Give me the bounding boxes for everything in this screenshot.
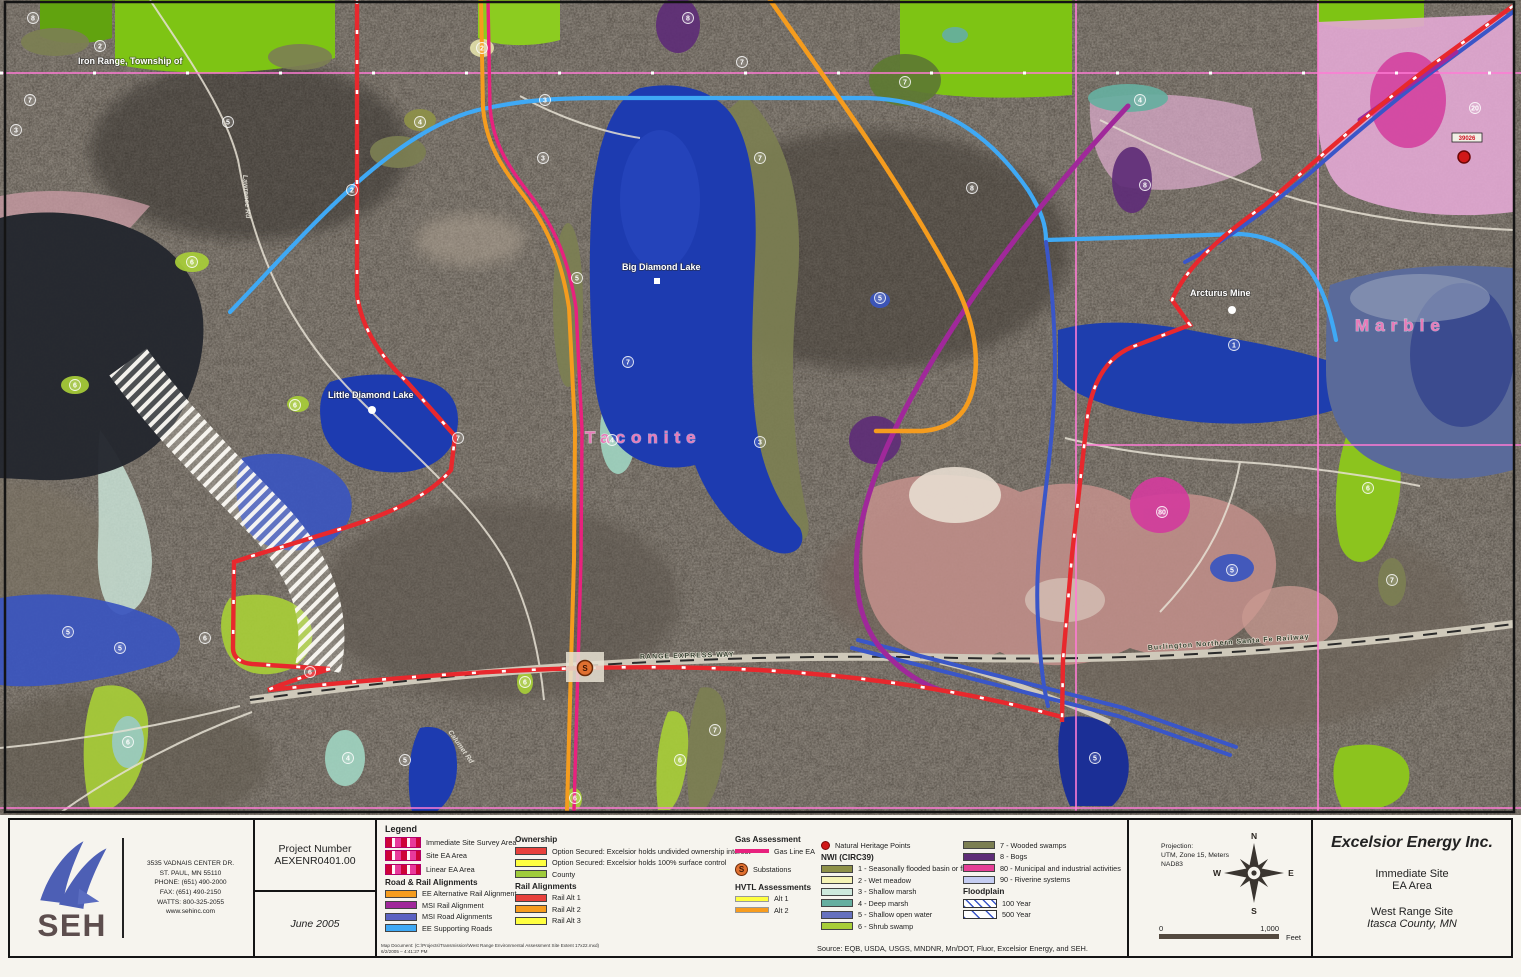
legend-label: 5 - Shallow open water	[858, 910, 932, 919]
wetland-class-number: 7	[456, 436, 460, 443]
map-document-timestamp: 6/2/2005 – 4:41:27 PM	[381, 949, 599, 955]
scale-unit: Feet	[1286, 933, 1301, 942]
scale-zero: 0	[1159, 924, 1163, 933]
address-line: PHONE: (651) 490-2000	[128, 878, 253, 888]
floodplain-header: Floodplain	[963, 887, 1131, 896]
arcturus-mine-label: Arcturus Mine	[1190, 288, 1251, 298]
wetland-class-number: 7	[740, 60, 744, 67]
wetland-class-number: 80	[1158, 510, 1166, 517]
address-line: 3535 VADNAIS CENTER DR.	[128, 859, 253, 869]
legend-label: 500 Year	[1002, 910, 1031, 919]
scale-max: 1,000	[1260, 924, 1279, 933]
linear-ea-area-swatch	[385, 864, 421, 875]
little-diamond-lake-label: Little Diamond Lake	[328, 390, 414, 400]
wetland-class-number: 5	[226, 120, 230, 127]
legend-label: 6 - Shrub swamp	[858, 922, 913, 931]
msi-rail-swatch	[385, 901, 417, 909]
nwi7-swatch	[963, 841, 995, 849]
project-date: June 2005	[290, 918, 339, 930]
project-number-value: AEXENR0401.00	[274, 855, 355, 867]
legend-panel: Legend Immediate Site Survey Area Site E…	[375, 818, 1129, 958]
substation-legend-icon: S	[735, 863, 748, 876]
wetland-class-number: 8	[1143, 183, 1147, 190]
legend-label: Immediate Site Survey Area	[426, 838, 516, 847]
ee-alt-rail-swatch	[385, 890, 417, 898]
address-line: WATTS: 800-325-2055	[128, 898, 253, 908]
legend-label: 1 - Seasonally flooded basin or flat	[858, 864, 970, 873]
scale-bar: 0 1,000 Feet	[1159, 924, 1279, 939]
wetland-class-number: 2	[98, 44, 102, 51]
nwi1-swatch	[821, 865, 853, 873]
rail-alt2-swatch	[515, 905, 547, 913]
wetland-class-number: 5	[66, 630, 70, 637]
ee-supporting-roads-swatch	[385, 924, 417, 932]
map-subtitle-line2: Itasca County, MN	[1367, 918, 1457, 930]
legend-label: 2 - Wet meadow	[858, 876, 911, 885]
wetland-class-number: 4	[346, 756, 350, 763]
legend-label: 8 - Bogs	[1000, 852, 1027, 861]
wetland-class-number: 6	[126, 740, 130, 747]
wetland-class-number: 6	[523, 680, 527, 687]
wetland-class-number: 6	[203, 636, 207, 643]
wetland-class-number: 7	[713, 728, 717, 735]
nwi2-swatch	[821, 876, 853, 884]
wetland-class-number: 20	[1471, 106, 1479, 113]
wetland-class-number: 3	[543, 98, 547, 105]
township-label: Iron Range, Township of	[78, 56, 183, 66]
wetland-class-number: 4	[418, 120, 422, 127]
site-ea-area-swatch	[385, 850, 421, 861]
wetland-class-number: 4	[1138, 98, 1142, 105]
legend-label: Rail Alt 1	[552, 893, 581, 902]
wetland-class-number: 5	[878, 296, 882, 303]
legend-label: Natural Heritage Points	[835, 841, 910, 850]
wetland-class-number: 6	[1366, 486, 1370, 493]
title-block-panel: Excelsior Energy Inc. Immediate Site EA …	[1311, 818, 1513, 958]
divider	[122, 838, 124, 938]
nwi4-swatch	[821, 899, 853, 907]
map-canvas: S 39026 Iron Range, Township of Big Diam…	[0, 0, 1521, 815]
legend-label: 100 Year	[1002, 899, 1031, 908]
heritage-point-id: 39026	[1459, 136, 1476, 142]
legend-label: Gas Line EA	[774, 847, 815, 856]
map-title-line1: Immediate Site	[1375, 868, 1448, 880]
wetland-class-number: 5	[403, 758, 407, 765]
legend-label: 90 - Riverine systems	[1000, 875, 1070, 884]
legend-label: Substations	[753, 865, 791, 874]
seh-wordmark: SEH	[37, 907, 106, 943]
big-diamond-lake-label: Big Diamond Lake	[622, 262, 701, 272]
aerial-map: S 39026 Iron Range, Township of Big Diam…	[0, 0, 1521, 815]
wetland-class-number: 4	[610, 438, 614, 445]
substation-letter: S	[582, 664, 588, 673]
wetland-class-number: 5	[118, 646, 122, 653]
wetland-class-number: 6	[308, 670, 312, 677]
gas-line-swatch	[735, 849, 769, 853]
legend-label: 7 - Wooded swamps	[1000, 841, 1066, 850]
map-subtitle-line1: West Range Site	[1371, 906, 1453, 918]
legend-label: Rail Alt 3	[552, 916, 581, 925]
map-title-line2: EA Area	[1392, 880, 1432, 892]
legend-label: 3 - Shallow marsh	[858, 887, 916, 896]
wetland-class-number: 7	[1390, 578, 1394, 585]
legend-label: EE Alternative Rail Alignment	[422, 889, 517, 898]
project-panel: Project Number AEXENR0401.00 June 2005	[253, 818, 377, 958]
wetland-class-number: 6	[190, 260, 194, 267]
heritage-point-legend-icon	[821, 841, 830, 850]
seh-url: www.sehinc.com	[128, 907, 253, 917]
nwi5-swatch	[821, 911, 853, 919]
source-note: Source: EQB, USDA, USGS, MNDNR, Mn/DOT, …	[817, 944, 1088, 953]
nwi8-swatch	[963, 853, 995, 861]
legend-label: Rail Alt 2	[552, 905, 581, 914]
wetland-class-number: 5	[1230, 568, 1234, 575]
wetland-class-number: 6	[293, 403, 297, 410]
wetland-class-number: 3	[14, 128, 18, 135]
substation-icon: S	[566, 652, 604, 682]
floodplain-100-swatch	[963, 899, 997, 908]
wetland-class-number: 3	[541, 156, 545, 163]
map-sheet: S 39026 Iron Range, Township of Big Diam…	[0, 0, 1521, 977]
immediate-site-survey-swatch	[385, 837, 421, 848]
compass-s: S	[1251, 906, 1257, 916]
seh-panel: SEH 3535 VADNAIS CENTER DR. ST. PAUL, MN…	[8, 818, 255, 958]
legend-label: Linear EA Area	[426, 865, 475, 874]
legend-label: Option Secured: Excelsior holds 100% sur…	[552, 858, 726, 867]
nwi80-swatch	[963, 864, 995, 872]
wetland-class-number: 8	[970, 186, 974, 193]
legend-label: 80 - Municipal and industrial activities	[1000, 864, 1121, 873]
legend-label: County	[552, 870, 575, 879]
legend-label: Site EA Area	[426, 851, 467, 860]
rail-alt3-swatch	[515, 917, 547, 925]
taconite-label: Taconite	[585, 428, 702, 447]
compass-n: N	[1251, 831, 1257, 841]
wetland-class-number: 6	[573, 796, 577, 803]
marble-label: Marble	[1355, 316, 1446, 335]
ownership-surface-swatch	[515, 859, 547, 867]
hvtl-alt2-swatch	[735, 907, 769, 913]
legend-label: MSI Road Alignments	[422, 912, 492, 921]
hvtl-alt1-swatch	[735, 896, 769, 902]
wetland-class-number: 6	[73, 383, 77, 390]
wetland-class-number: 5	[1093, 756, 1097, 763]
compass-rose: N E S W	[1211, 830, 1297, 916]
seh-logo: SEH	[10, 824, 118, 952]
legend-label: EE Supporting Roads	[422, 924, 492, 933]
wetland-class-number: 2	[480, 46, 484, 53]
nwi6-swatch	[821, 922, 853, 930]
wetland-class-number: 5	[575, 276, 579, 283]
project-number-label: Project Number	[279, 843, 352, 855]
wetland-class-number: 6	[678, 758, 682, 765]
floodplain-500-swatch	[963, 910, 997, 919]
wetland-class-number: 7	[903, 80, 907, 87]
company-name: Excelsior Energy Inc.	[1331, 834, 1493, 852]
compass-e: E	[1288, 868, 1294, 878]
wetland-class-number: 7	[758, 156, 762, 163]
wetland-class-number: 8	[31, 16, 35, 23]
address-line: FAX: (651) 490-2150	[128, 888, 253, 898]
legend-label: Alt 2	[774, 906, 789, 915]
legend-label: 4 - Deep marsh	[858, 899, 908, 908]
compass-w: W	[1213, 868, 1222, 878]
legend-label: Option Secured: Excelsior holds undivide…	[552, 847, 750, 856]
wetland-class-number: 7	[28, 98, 32, 105]
address-line: ST. PAUL, MN 55110	[128, 869, 253, 879]
map-document-note: Map Document: (C:\Projects\Transmission\…	[381, 943, 599, 955]
msi-road-swatch	[385, 913, 417, 921]
wetland-class-number: 7	[626, 360, 630, 367]
scale-rule	[1159, 934, 1279, 939]
wetland-class-number: 2	[350, 188, 354, 195]
nwi90-swatch	[963, 876, 995, 884]
nwi3-swatch	[821, 888, 853, 896]
ownership-undivided-swatch	[515, 847, 547, 855]
wetland-class-number: 3	[758, 440, 762, 447]
wetland-class-number: 1	[1232, 343, 1236, 350]
projection-panel: Projection: UTM, Zone 15, Meters NAD83 N…	[1127, 818, 1313, 958]
legend-label: Alt 1	[774, 894, 789, 903]
wetland-class-number: 8	[686, 16, 690, 23]
ownership-county-swatch	[515, 870, 547, 878]
seh-address: 3535 VADNAIS CENTER DR. ST. PAUL, MN 551…	[128, 859, 253, 916]
legend-label: MSI Rail Alignment	[422, 901, 484, 910]
rail-alt1-swatch	[515, 894, 547, 902]
